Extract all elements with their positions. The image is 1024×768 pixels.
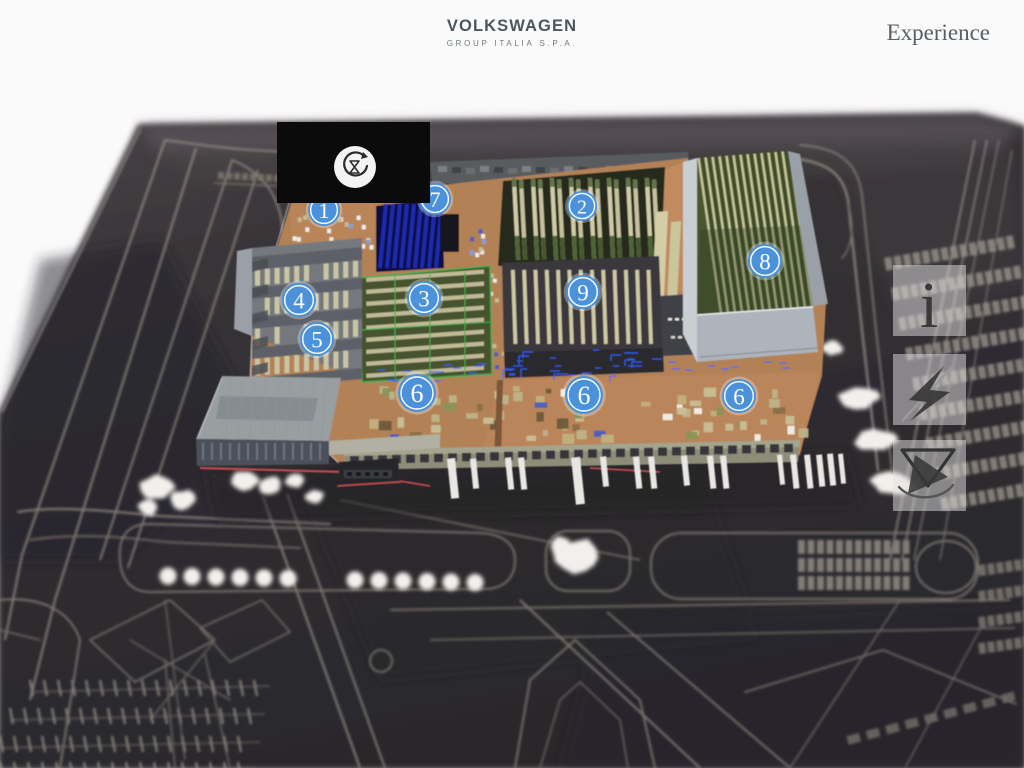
svg-text:7: 7 — [430, 187, 441, 212]
svg-text:6: 6 — [411, 379, 424, 408]
svg-text:i: i — [920, 269, 938, 342]
svg-text:4: 4 — [293, 288, 305, 313]
svg-text:3: 3 — [418, 286, 430, 311]
svg-text:6: 6 — [578, 381, 591, 410]
svg-text:2: 2 — [577, 196, 587, 218]
svg-text:6: 6 — [733, 384, 745, 409]
svg-text:8: 8 — [759, 249, 771, 274]
svg-text:9: 9 — [577, 280, 589, 305]
svg-text:5: 5 — [311, 327, 323, 352]
